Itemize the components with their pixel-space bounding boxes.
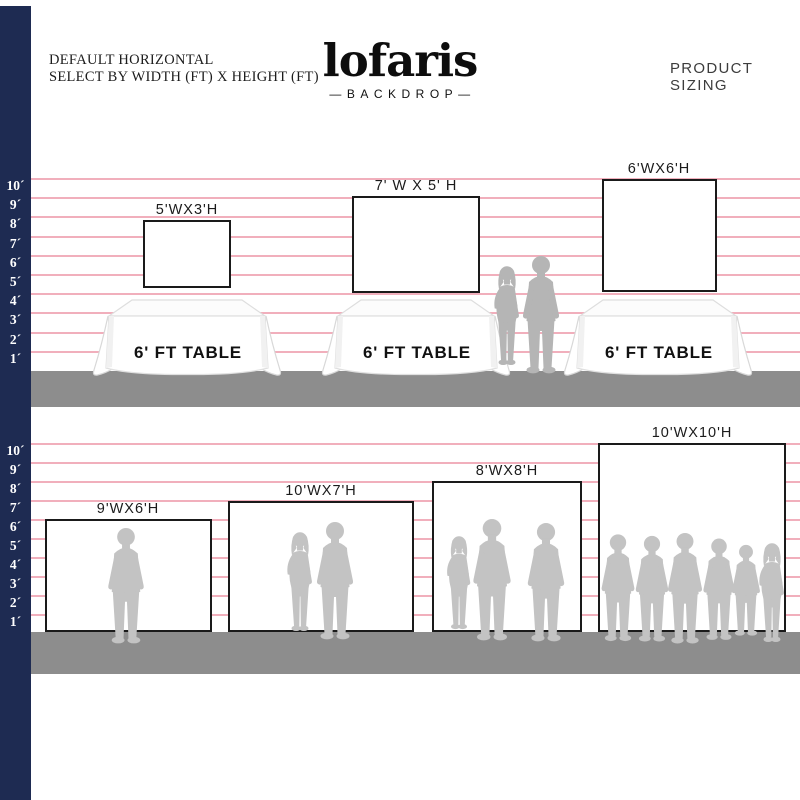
gridline: [31, 293, 800, 295]
ruler-label: 3´: [0, 576, 31, 592]
table-6ft: [563, 298, 753, 382]
ruler-label: 10´: [0, 178, 31, 194]
brand-wordmark: lofaris: [323, 36, 478, 86]
backdrop-size-label: 10'WX10'H: [652, 425, 733, 441]
ruler-label: 9´: [0, 197, 31, 213]
backdrop-size-label: 5'WX3'H: [156, 202, 219, 218]
backdrop-size-label: 8'WX8'H: [476, 463, 539, 479]
backdrop-size-label: 6'WX6'H: [628, 161, 691, 177]
backdrop-size-label: 9'WX6'H: [97, 501, 160, 517]
backdrop-7x5: [352, 196, 480, 293]
brand-subtitle: —BACKDROP—: [323, 87, 478, 101]
ruler-label: 1´: [0, 351, 31, 367]
person-man-silhouette: [523, 522, 569, 643]
ruler-label: 6´: [0, 255, 31, 271]
table-6ft: [92, 298, 282, 382]
ruler-label: 9´: [0, 462, 31, 478]
person-man-silhouette: [313, 521, 357, 641]
ruler-label: 4´: [0, 557, 31, 573]
ruler-label: 8´: [0, 216, 31, 232]
table-label: 6' FT TABLE: [363, 343, 471, 363]
ruler-label: 8´: [0, 481, 31, 497]
backdrop-size-label: 7' W X 5' H: [375, 178, 458, 194]
ruler-label: 1´: [0, 614, 31, 630]
header-note-line2: SELECT BY WIDTH (FT) X HEIGHT (FT): [49, 69, 319, 86]
person-woman-silhouette: [755, 541, 789, 645]
backdrop-size-label: 10'WX7'H: [285, 483, 357, 499]
header-note: DEFAULT HORIZONTAL SELECT BY WIDTH (FT) …: [49, 52, 319, 86]
brand-logo: lofaris —BACKDROP—: [323, 36, 478, 101]
ruler-label: 6´: [0, 519, 31, 535]
ruler-label: 3´: [0, 312, 31, 328]
person-man-silhouette: [519, 255, 563, 375]
table-6ft: [321, 298, 511, 382]
ruler-label: 2´: [0, 595, 31, 611]
ruler-label: 4´: [0, 293, 31, 309]
page-title: PRODUCT SIZING: [670, 60, 800, 94]
ruler-label: 10´: [0, 443, 31, 459]
ruler-label: 5´: [0, 274, 31, 290]
table-label: 6' FT TABLE: [134, 343, 242, 363]
ruler-label: 5´: [0, 538, 31, 554]
ruler-label: 7´: [0, 236, 31, 252]
product-sizing-poster: DEFAULT HORIZONTAL SELECT BY WIDTH (FT) …: [0, 0, 800, 800]
backdrop-5x3: [143, 220, 231, 288]
backdrop-6x6: [602, 179, 717, 292]
table-label: 6' FT TABLE: [605, 343, 713, 363]
ruler-label: 2´: [0, 332, 31, 348]
person-woman-silhouette: [283, 523, 317, 641]
ruler-label: 7´: [0, 500, 31, 516]
left-ruler-bar: [0, 6, 31, 800]
person-man-silhouette: [104, 527, 148, 645]
header-note-line1: DEFAULT HORIZONTAL: [49, 52, 319, 69]
person-man-silhouette: [469, 518, 515, 642]
